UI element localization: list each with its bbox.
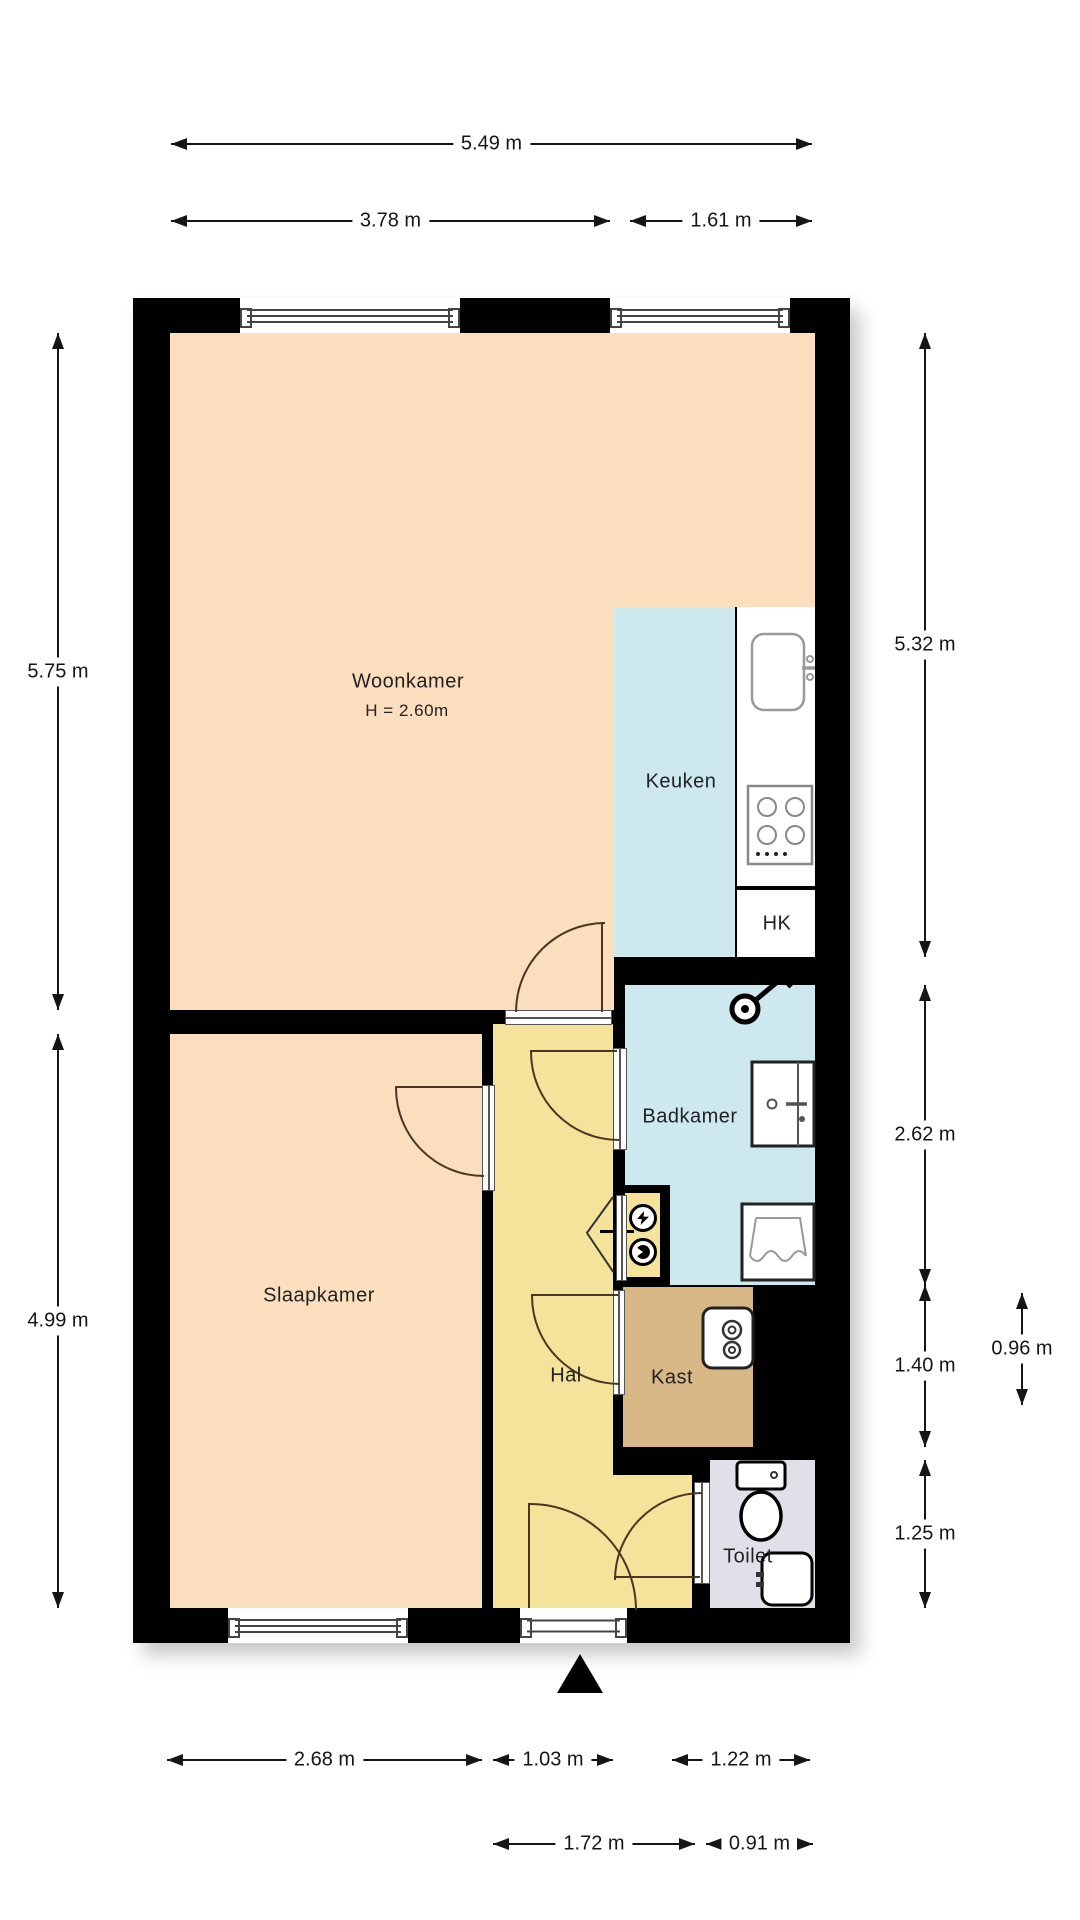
dim-hal-entry-width: 1.72 m xyxy=(493,1843,695,1845)
toilet-icon xyxy=(734,1458,790,1546)
room-label-kast: Kast xyxy=(651,1367,693,1390)
electric-meter-icon xyxy=(629,1204,657,1232)
door-meterkast xyxy=(616,1195,627,1281)
room-label-woonkamer: Woonkamer xyxy=(352,671,464,694)
dim-total-width: 5.49 m xyxy=(171,143,812,145)
washbasin-icon xyxy=(750,1060,816,1148)
room-label-hk: HK xyxy=(763,913,792,936)
door-woonkamer-hal xyxy=(505,1010,612,1025)
room-label-woonkamer-height: H = 2.60m xyxy=(365,701,448,721)
dim-woonkamer-height: 5.75 m xyxy=(57,333,59,1010)
dim-badkamer-height: 2.62 m xyxy=(924,985,926,1285)
room-label-keuken: Keuken xyxy=(646,771,717,794)
dim-toilet-top-width: 1.22 m xyxy=(672,1759,810,1761)
dim-woonkamer-width: 3.78 m xyxy=(171,220,610,222)
room-label-badkamer: Badkamer xyxy=(642,1106,737,1129)
counter-divider xyxy=(735,886,815,890)
entrance-arrow-icon xyxy=(557,1654,603,1693)
shower-icon xyxy=(718,962,803,1037)
dim-toilet-width: 0.91 m xyxy=(706,1843,813,1845)
window-slaapkamer-bottom xyxy=(228,1608,408,1643)
room-woonkamer xyxy=(170,333,815,607)
dim-kast-height: 1.40 m xyxy=(924,1285,926,1447)
water-meter-icon xyxy=(629,1238,657,1266)
entrance-door-opening xyxy=(520,1608,627,1643)
room-label-slaapkamer: Slaapkamer xyxy=(263,1285,375,1308)
kitchen-sink-icon xyxy=(744,628,816,718)
room-label-toilet: Toilet xyxy=(723,1546,773,1569)
dim-keuken-height: 5.32 m xyxy=(924,333,926,957)
dim-slaapkamer-width: 2.68 m xyxy=(167,1759,482,1761)
room-label-hal: Hal xyxy=(550,1365,582,1388)
dim-kast-width: 0.96 m xyxy=(1021,1293,1023,1405)
dim-hal-width: 1.03 m xyxy=(493,1759,613,1761)
dim-slaapkamer-height: 4.99 m xyxy=(57,1034,59,1608)
stove-icon xyxy=(746,784,816,868)
laundry-sink-icon xyxy=(740,1202,816,1282)
floor-plan: Woonkamer H = 2.60m Keuken HK Badkamer S… xyxy=(0,0,1080,1920)
window-keuken-top xyxy=(610,298,790,333)
dim-keuken-width: 1.61 m xyxy=(630,220,812,222)
boiler-icon xyxy=(699,1304,759,1374)
dim-toilet-height: 1.25 m xyxy=(924,1460,926,1608)
window-woonkamer-top-left xyxy=(240,298,460,333)
